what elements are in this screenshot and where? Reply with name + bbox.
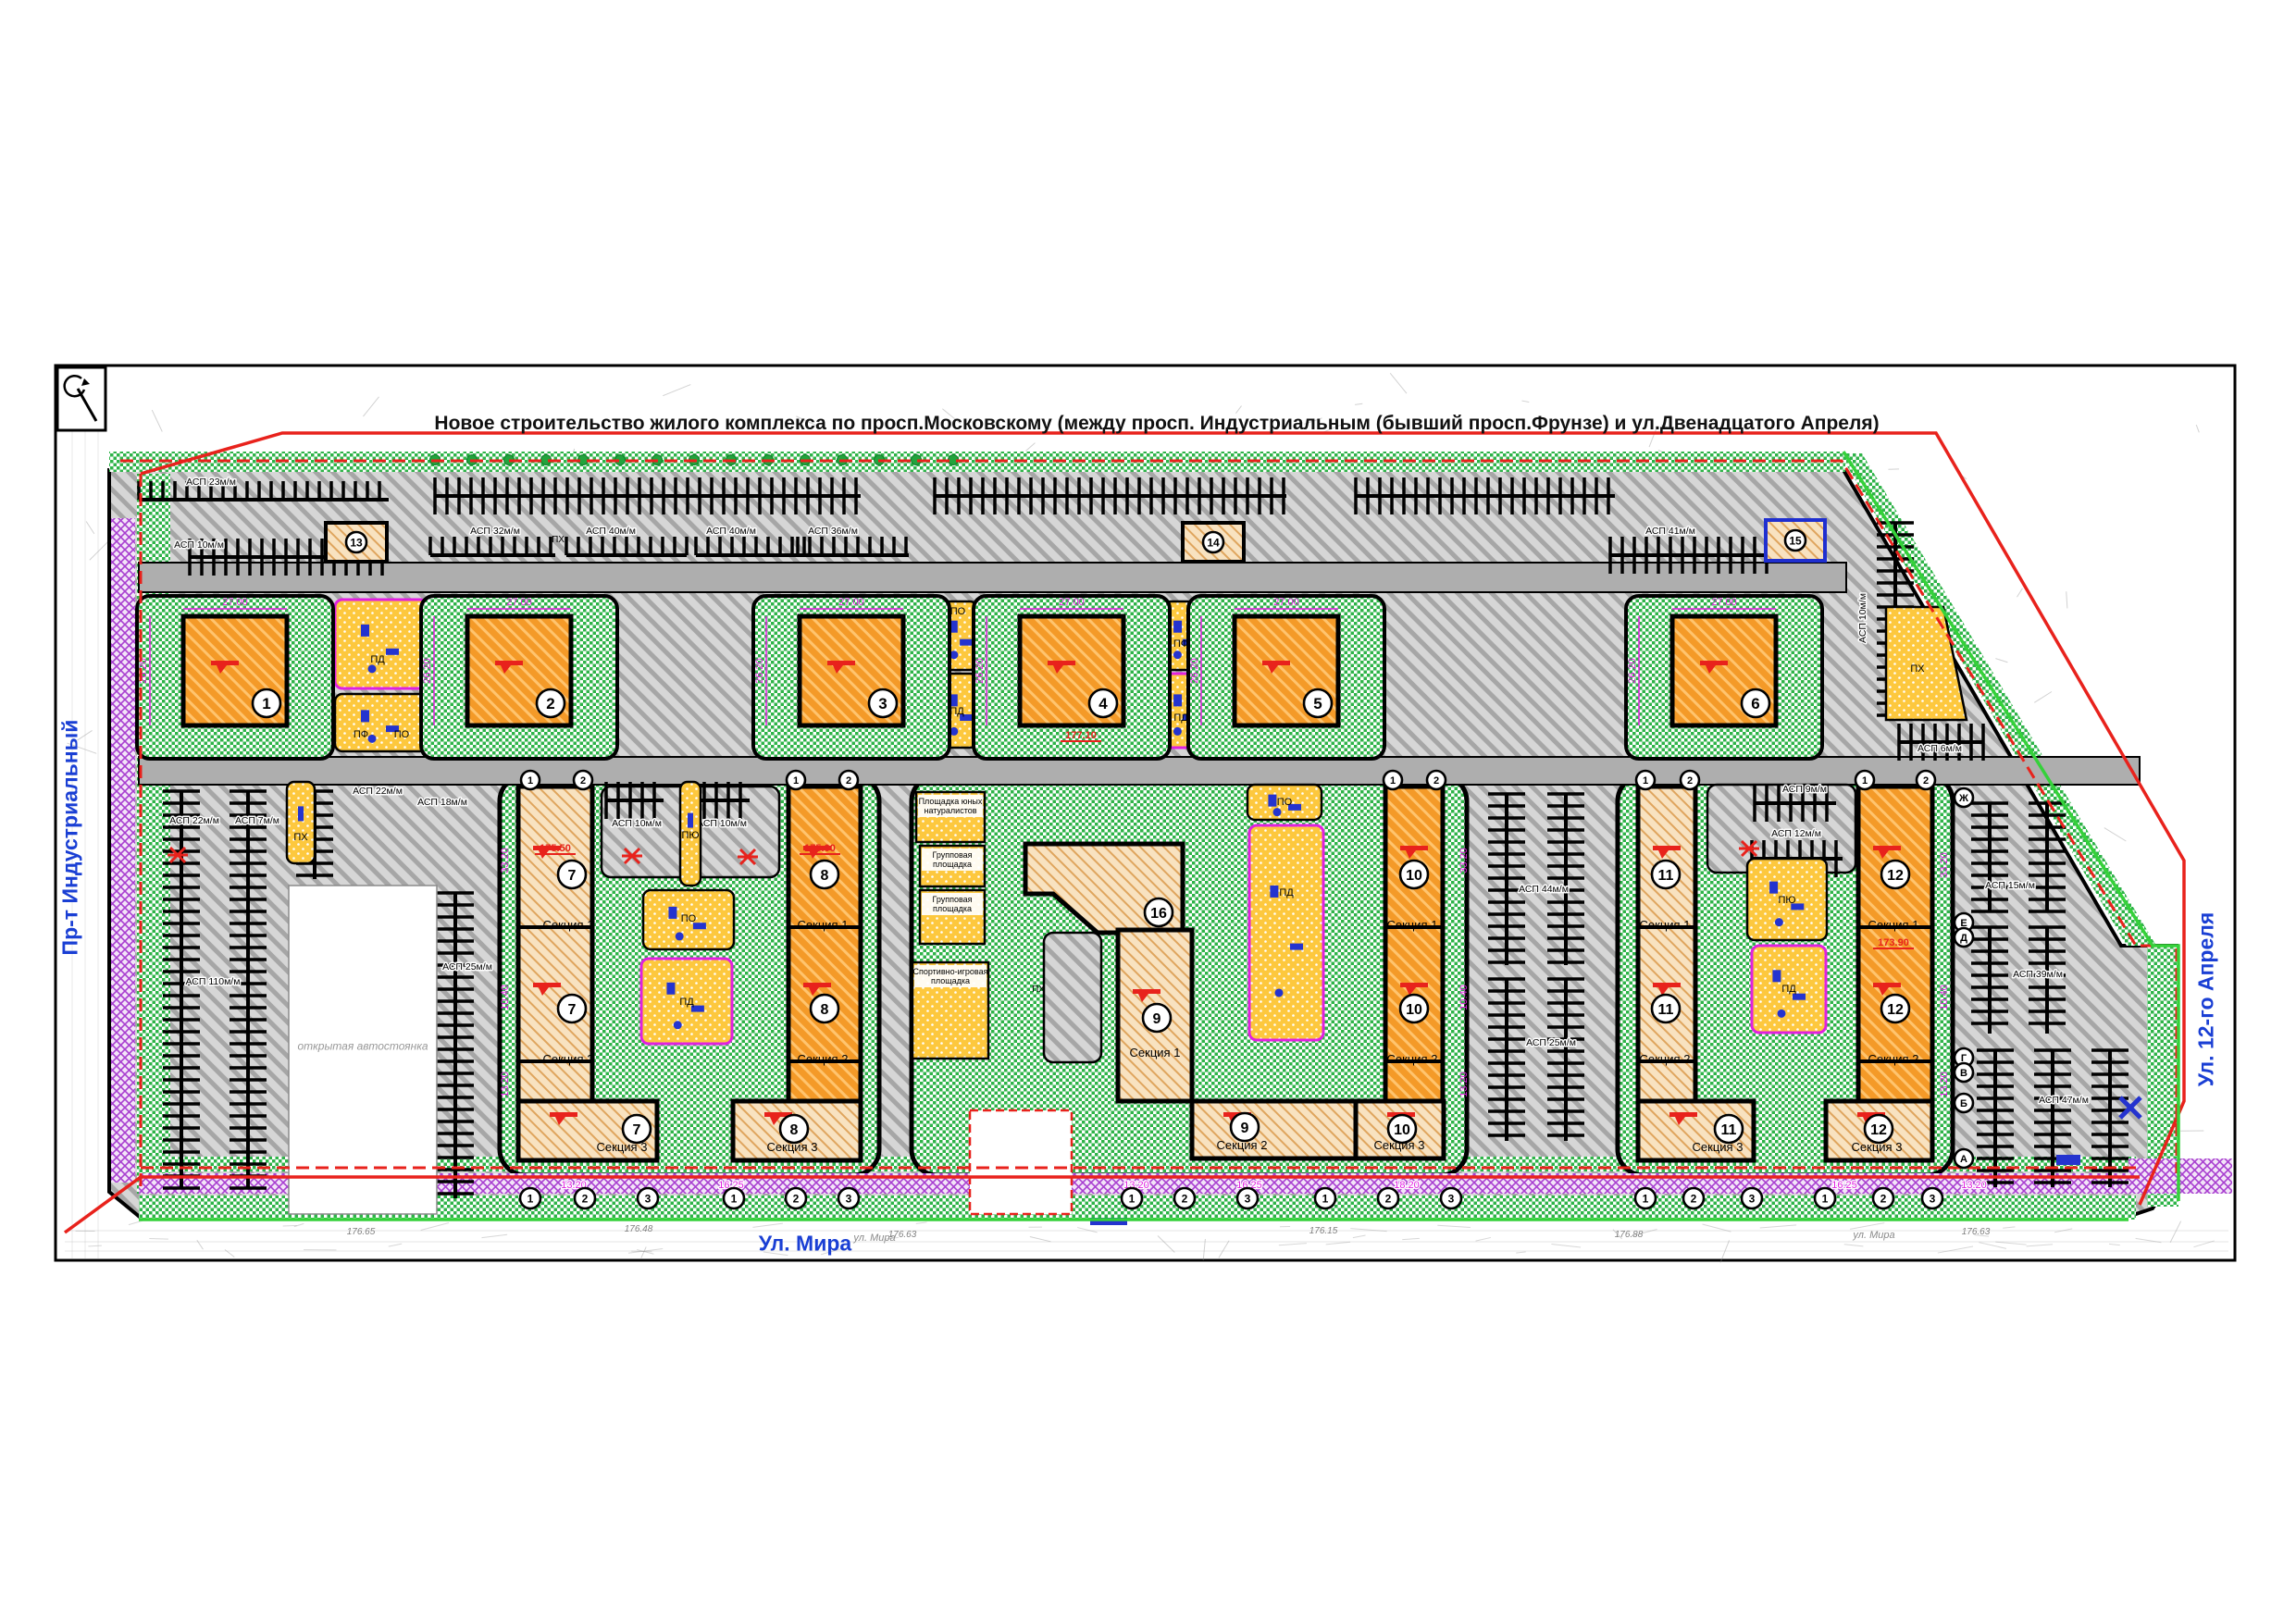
elevation-value: 175.00 — [804, 843, 836, 854]
building-number-12: 12 — [1881, 995, 1909, 1022]
platform-label: натуралистов — [925, 806, 977, 815]
section-label: Секция 1 — [1130, 1046, 1181, 1059]
section-label: Секция 2 — [1217, 1138, 1268, 1152]
playground-code-label: ПХ — [1910, 663, 1925, 675]
substation-building-14: 14 — [1183, 523, 1244, 562]
section-label: Секция 2 — [543, 1052, 594, 1066]
substation-building-15: 15 — [1766, 520, 1825, 561]
site-plan-page: АСП 23м/мАСП 10м/мАСП 32м/мАСП 40м/мАСП … — [0, 0, 2296, 1623]
play-equipment-icon — [1273, 808, 1282, 816]
bubble-number: 2 — [793, 1192, 800, 1205]
bubble-number: 1 — [1822, 1192, 1829, 1205]
platform-label: Групповая — [932, 850, 972, 860]
play-equipment-icon — [368, 664, 377, 673]
play-equipment-icon — [1769, 882, 1778, 894]
dim-width: 27.00 — [222, 597, 248, 608]
parking-capacity-label: АСП 40м/м — [706, 526, 756, 537]
bubble-number: А — [1960, 1154, 1967, 1165]
axis-bubble: 3 — [1237, 1188, 1258, 1208]
parking-capacity-label: АСП 9м/м — [1782, 784, 1827, 795]
shrub-strip — [111, 518, 135, 1183]
bubble-number: 2 — [1687, 775, 1693, 787]
axis-bubble: Б — [1955, 1094, 1973, 1112]
playground: ПФПО — [335, 694, 428, 751]
play-equipment-icon — [298, 806, 304, 821]
parking-capacity-label: АСП 22м/м — [353, 786, 403, 797]
survey-line — [283, 1225, 297, 1226]
playground-code-label: ПХ — [552, 535, 565, 545]
play-equipment-icon — [1268, 795, 1276, 807]
dim-width: 27.00 — [1059, 597, 1085, 608]
parking-capacity-label: АСП 12м/м — [1771, 828, 1821, 839]
axis-bubble: 2 — [1427, 771, 1446, 789]
bubble-number: 11 — [1658, 868, 1674, 884]
play-equipment-icon — [960, 639, 973, 646]
section-label: Секция 3 — [767, 1140, 818, 1154]
play-equipment-icon — [1173, 650, 1182, 659]
street-label-mira: Ул. Мира — [759, 1232, 851, 1257]
building-number-11: 11 — [1652, 861, 1680, 888]
building-number-10: 10 — [1400, 861, 1428, 888]
axis-bubble: 2 — [786, 1188, 806, 1208]
playground-area — [287, 782, 315, 863]
playground: ПЮ — [680, 782, 701, 886]
playground-code-label: ПД — [1173, 712, 1188, 724]
bubble-number: Б — [1960, 1098, 1967, 1109]
play-equipment-icon — [1173, 621, 1182, 633]
drive-road — [139, 757, 2140, 785]
bubble-number: 7 — [633, 1122, 641, 1138]
parking-capacity-label: АСП 47м/м — [2039, 1095, 2089, 1106]
bubble-number: 2 — [546, 695, 554, 712]
bubble-number: 6 — [1751, 695, 1759, 712]
axis-bubble: 2 — [1873, 1188, 1893, 1208]
axis-bubble: Ж — [1955, 788, 1973, 807]
parking-capacity-label: АСП 36м/м — [808, 526, 858, 537]
playground: ПД — [1249, 825, 1323, 1040]
bubble-number: 15 — [1789, 534, 1802, 547]
kindergarten-platform: Спортивно-игроваяплощадка — [912, 962, 988, 1059]
survey-elevation: 176.15 — [1309, 1226, 1338, 1236]
building-number-6: 6 — [1742, 689, 1769, 717]
bubble-number: 1 — [1643, 775, 1648, 787]
playground: ПД — [1752, 946, 1826, 1033]
parking-capacity-label: АСП 41м/м — [1645, 526, 1695, 537]
section-label: Секция 1 — [798, 918, 849, 932]
bubble-number: 11 — [1721, 1122, 1737, 1138]
axis-bubble: 2 — [1683, 1188, 1704, 1208]
axis-bubble: 3 — [1441, 1188, 1461, 1208]
section-label: Секция 1 — [1868, 918, 1919, 932]
parking-capacity-label: АСП 7м/м — [235, 815, 279, 826]
survey-elevation: 176.48 — [625, 1224, 653, 1234]
bubble-number: 8 — [790, 1122, 799, 1138]
dim-vertical: 33.20 — [500, 848, 511, 873]
bubble-number: 1 — [793, 775, 799, 787]
building-number-11: 11 — [1715, 1115, 1743, 1143]
dim-width: 27.00 — [1273, 597, 1299, 608]
axis-bubble: 1 — [724, 1188, 744, 1208]
axis-bubble: 2 — [1378, 1188, 1398, 1208]
bubble-number: 9 — [1153, 1011, 1161, 1027]
survey-elevation: 176.65 — [347, 1227, 376, 1237]
bubble-number: 7 — [568, 1002, 577, 1018]
substation-building-13: 13 — [326, 523, 387, 562]
axis-bubble: 1 — [1636, 771, 1655, 789]
axis-bubble: Д — [1955, 928, 1973, 947]
building-number-8: 8 — [811, 995, 838, 1022]
parking-capacity-label: АСП 40м/м — [586, 526, 636, 537]
playground-code-label: ПО — [394, 729, 410, 740]
section-label: Секция 1 — [1387, 918, 1438, 932]
street-label-12-aprelya: Ул. 12-го Апреля — [2194, 912, 2219, 1087]
building-number-8: 8 — [811, 861, 838, 888]
play-equipment-icon — [666, 983, 675, 995]
section-label: Секция 2 — [1868, 1052, 1919, 1066]
section-label: Секция 1 — [1640, 918, 1691, 932]
axis-bubble: 1 — [1122, 1188, 1142, 1208]
bubble-number: 12 — [1870, 1122, 1887, 1138]
tower-building-2: 27.0026.202 — [421, 596, 617, 759]
site-plan-drawing: АСП 23м/мАСП 10м/мАСП 32м/мАСП 40м/мАСП … — [0, 0, 2296, 1623]
section-label: Секция 3 — [597, 1140, 648, 1154]
axis-bubble: 2 — [574, 771, 592, 789]
parking-capacity-label: АСП 10м/м — [697, 818, 747, 829]
building-number-12: 12 — [1881, 861, 1909, 888]
bubble-number: 10 — [1406, 1002, 1422, 1018]
play-equipment-icon — [1772, 970, 1781, 982]
play-equipment-icon — [688, 813, 693, 828]
dim-vertical: 10.40 — [1939, 985, 1950, 1010]
bubble-number: 10 — [1394, 1122, 1410, 1138]
bubble-number: 3 — [1930, 1192, 1936, 1205]
bubble-number: 8 — [821, 868, 829, 884]
playground-code-label: ПД — [1781, 984, 1796, 995]
axis-bubble: 1 — [1384, 771, 1402, 789]
bubble-number: 3 — [645, 1192, 652, 1205]
page-title: Новое строительство жилого комплекса по … — [434, 413, 1879, 435]
bubble-number: 2 — [1182, 1192, 1188, 1205]
axis-bubble: 2 — [1174, 1188, 1195, 1208]
building-number-8: 8 — [780, 1115, 808, 1143]
bubble-number: 2 — [1385, 1192, 1392, 1205]
survey-line — [149, 1238, 168, 1239]
bubble-number: 2 — [846, 775, 851, 787]
dim-vertical: 13.20 — [500, 1072, 511, 1097]
dim-height: 26.20 — [1627, 658, 1638, 684]
bubble-number: 1 — [527, 1192, 534, 1205]
bubble-number: 9 — [1241, 1121, 1249, 1136]
playground-code-label: ПД — [370, 654, 385, 665]
drive-road — [139, 563, 1846, 592]
shrub-strip — [2128, 1158, 2232, 1194]
axis-bubble: 3 — [1742, 1188, 1762, 1208]
bubble-number: 1 — [1322, 1192, 1329, 1205]
playground: ПО — [1247, 785, 1322, 820]
bubble-number: 1 — [527, 775, 533, 787]
section-label: Секция 3 — [1374, 1138, 1425, 1152]
building-number-3: 3 — [869, 689, 897, 717]
bubble-number: 3 — [1749, 1192, 1756, 1205]
bubble-number: Д — [1960, 933, 1967, 944]
building-number-12: 12 — [1865, 1115, 1893, 1143]
parking-capacity-label: АСП 25м/м — [442, 961, 492, 973]
platform-label: Спортивно-игровая — [913, 967, 988, 976]
parking-capacity-label: АСП 32м/м — [470, 526, 520, 537]
tower-building-1: 27.0026.201 — [137, 596, 333, 759]
axis-bubble: А — [1955, 1149, 1973, 1168]
dim-height: 26.20 — [422, 658, 433, 684]
building-number-10: 10 — [1400, 995, 1428, 1022]
playground: ПД — [335, 600, 428, 688]
parking-capacity-label: АСП 6м/м — [1917, 743, 1962, 754]
bubble-number: 2 — [1433, 775, 1439, 787]
play-equipment-icon — [386, 649, 399, 655]
blue-marker — [2056, 1155, 2080, 1165]
axis-bubble: 2 — [575, 1188, 595, 1208]
parking-capacity-label: АСП 44м/м — [1519, 884, 1569, 895]
playground-area — [1249, 825, 1323, 1040]
play-equipment-icon — [674, 1021, 682, 1029]
elevation-value: 177.10 — [1065, 730, 1097, 741]
playground: ПД — [641, 959, 732, 1044]
existing-structure-outline — [970, 1110, 1072, 1214]
axis-bubble: 3 — [1922, 1188, 1942, 1208]
playground-area — [335, 600, 428, 688]
play-equipment-icon — [668, 907, 676, 919]
axis-bubble: 1 — [1635, 1188, 1656, 1208]
platform-label: площадка — [931, 976, 970, 985]
axis-bubble: 1 — [1855, 771, 1874, 789]
axis-bubble: В — [1955, 1063, 1973, 1082]
survey-elevation: 176.88 — [1615, 1230, 1644, 1240]
playground-code-label: ПО — [681, 913, 697, 924]
bubble-number: 4 — [1098, 695, 1108, 712]
dim-height: 26.20 — [1189, 658, 1200, 684]
dim-vertical: 13.20 — [1939, 1072, 1950, 1097]
play-equipment-icon — [368, 735, 377, 743]
playground: ПХ — [287, 782, 315, 863]
play-equipment-icon — [361, 625, 369, 637]
playground-code-label: ПД — [949, 706, 964, 717]
elevation-value: 173.90 — [1878, 937, 1909, 948]
playground-code-label: ПХ — [293, 832, 308, 843]
open-parking-label: открытая автостоянка — [297, 1040, 428, 1053]
bubble-number: 1 — [1129, 1192, 1136, 1205]
axis-bubble: 2 — [1681, 771, 1699, 789]
play-equipment-icon — [1290, 944, 1303, 950]
building-number-1: 1 — [253, 689, 280, 717]
axis-bubble: 2 — [839, 771, 858, 789]
north-arrow-box — [57, 367, 105, 430]
bubble-number: 1 — [1643, 1192, 1649, 1205]
bubble-number: 3 — [1448, 1192, 1455, 1205]
dim-width: 27.00 — [838, 597, 864, 608]
playground-area — [335, 694, 428, 751]
tower-building-6: 27.0026.206 — [1626, 596, 1822, 759]
bubble-number: 12 — [1887, 868, 1904, 884]
parking-capacity-label: АСП 39м/м — [2013, 969, 2063, 980]
parking-capacity-label: АСП 25м/м — [1526, 1037, 1576, 1048]
axis-bubble: 1 — [520, 1188, 540, 1208]
axis-bubble: 1 — [1315, 1188, 1335, 1208]
playground-code-label: ПО — [1277, 797, 1293, 808]
bubble-number: 3 — [846, 1192, 852, 1205]
section-label: Секция 2 — [1387, 1052, 1438, 1066]
street-name-small: ул. Мира — [852, 1233, 895, 1244]
bubble-number: В — [1960, 1068, 1967, 1079]
playground-code-label: ПЮ — [1778, 895, 1795, 906]
platform-label: Групповая — [932, 895, 972, 904]
playground-code-label: ПД — [1279, 887, 1294, 898]
bubble-number: 3 — [1245, 1192, 1251, 1205]
survey-elevation: 176.63 — [1962, 1227, 1991, 1237]
bubble-number: 2 — [1880, 1192, 1887, 1205]
playground: ПО — [643, 890, 734, 949]
building-number-4: 4 — [1089, 689, 1117, 717]
parking-capacity-label: АСП 18м/м — [417, 797, 467, 808]
bubble-number: 10 — [1406, 868, 1422, 884]
playground-code-label: ПФ — [1173, 638, 1188, 650]
building-number-7: 7 — [623, 1115, 651, 1143]
play-equipment-icon — [1275, 988, 1284, 997]
bubble-number: 14 — [1207, 536, 1220, 549]
bubble-number: 12 — [1887, 1002, 1904, 1018]
building-number-11: 11 — [1652, 995, 1680, 1022]
street-name-small: ул. Мира — [1852, 1230, 1894, 1241]
section-label: Секция 2 — [1640, 1052, 1691, 1066]
section-label: Секция 3 — [1693, 1140, 1744, 1154]
building-number-14: 14 — [1203, 532, 1223, 552]
building-number-9: 9 — [1231, 1113, 1259, 1141]
building-number-7: 7 — [558, 995, 586, 1022]
bubble-number: 1 — [1862, 775, 1868, 787]
parking-capacity-label: АСП 15м/м — [1985, 880, 2035, 891]
tower-building-5: 27.0026.205 — [1188, 596, 1384, 759]
kindergarten-platform: Групповаяплощадка — [920, 846, 985, 886]
section-label: Секция 1 — [543, 918, 594, 932]
building-number-7: 7 — [558, 861, 586, 888]
parking-capacity-label: АСП 22м/м — [169, 815, 219, 826]
axis-bubble: 3 — [838, 1188, 859, 1208]
bubble-number: 3 — [878, 695, 887, 712]
building-number-16: 16 — [1145, 898, 1173, 926]
bubble-number: 1 — [731, 1192, 738, 1205]
parking-capacity-label: АСП 23м/м — [186, 477, 236, 488]
play-equipment-icon — [1173, 727, 1182, 736]
bubble-number: 7 — [568, 868, 577, 884]
play-equipment-icon — [361, 710, 369, 722]
dim-height: 26.20 — [754, 658, 765, 684]
playground-code-label: ПФ — [354, 729, 368, 740]
parking-capacity-label: АСП 10м/м — [174, 539, 224, 551]
courtyard-paving — [1044, 933, 1101, 1062]
building-number-2: 2 — [537, 689, 565, 717]
parking-row — [1547, 794, 1584, 965]
dim-width: 27.00 — [506, 597, 532, 608]
parking-capacity-label: АСП 10м/м — [612, 818, 662, 829]
bubble-number: 5 — [1313, 695, 1322, 712]
dim-vertical: 33.20 — [1458, 848, 1470, 873]
playground-code-label: ПХ — [1032, 985, 1045, 995]
platform-label: площадка — [933, 860, 972, 869]
axis-bubble: 1 — [521, 771, 540, 789]
kindergarten-platform: Групповаяплощадка — [920, 890, 985, 944]
building-number-15: 15 — [1785, 530, 1806, 551]
building-number-9: 9 — [1143, 1004, 1171, 1032]
dim-vertical: 13.20 — [1458, 1072, 1470, 1097]
play-equipment-icon — [1270, 886, 1278, 898]
bubble-number: 2 — [1923, 775, 1929, 787]
bubble-number: 1 — [1390, 775, 1396, 787]
dim-bottom: 18.20 — [1394, 1180, 1420, 1191]
dim-vertical: 10.40 — [1458, 985, 1470, 1010]
bubble-number: 16 — [1150, 906, 1167, 922]
bubble-number: Ж — [1958, 793, 1968, 804]
platform-label: площадка — [933, 904, 972, 913]
tower-building-3: 27.0026.203 — [753, 596, 949, 759]
street-label-industrialny: Пр-т Индустриальный — [58, 720, 83, 956]
building-number-13: 13 — [346, 532, 366, 552]
axis-bubble: 1 — [1815, 1188, 1835, 1208]
bubble-number: 11 — [1658, 1002, 1674, 1018]
playground-code-label: ПЮ — [681, 830, 699, 841]
kindergarten-platform: Площадка юныхнатуралистов — [916, 792, 985, 842]
play-equipment-icon — [1173, 694, 1182, 706]
dim-vertical: 33.20 — [1939, 852, 1950, 878]
axis-bubble: 3 — [638, 1188, 658, 1208]
dim-bottom: 13.20 — [1961, 1180, 1987, 1191]
play-equipment-icon — [1775, 918, 1783, 926]
bubble-number: 8 — [821, 1002, 829, 1018]
dim-bottom: 16.25 — [1831, 1180, 1857, 1191]
axis-bubble: 2 — [1917, 771, 1935, 789]
dim-height: 26.20 — [974, 658, 986, 684]
section-label: Секция 2 — [798, 1052, 849, 1066]
elevation-value: 175.50 — [540, 843, 571, 854]
dim-vertical: 10.40 — [500, 985, 511, 1010]
bubble-number: 2 — [1691, 1192, 1697, 1205]
axis-bubble: 1 — [787, 771, 805, 789]
section-label: Секция 3 — [1852, 1140, 1903, 1154]
parking-row — [1488, 794, 1525, 965]
parking-capacity-label: АСП 10м/м — [1857, 593, 1868, 643]
playground: ПЮ — [1747, 859, 1827, 940]
play-equipment-icon — [1778, 1010, 1786, 1018]
bubble-number: 13 — [350, 536, 363, 549]
bubble-number: 2 — [580, 775, 586, 787]
north-arrow — [57, 367, 105, 430]
play-equipment-icon — [676, 932, 684, 940]
playground-code-label: ПО — [950, 606, 966, 617]
bubble-number: 1 — [262, 695, 270, 712]
dim-width: 27.00 — [1711, 597, 1737, 608]
playground-code-label: ПД — [679, 997, 694, 1008]
bubble-number: 2 — [582, 1192, 589, 1205]
platform-label: Площадка юных — [919, 797, 983, 806]
building-number-5: 5 — [1304, 689, 1332, 717]
parking-capacity-label: АСП 110м/м — [186, 976, 241, 987]
